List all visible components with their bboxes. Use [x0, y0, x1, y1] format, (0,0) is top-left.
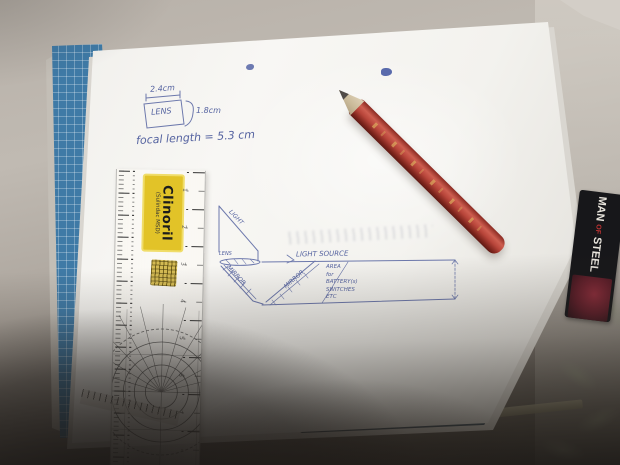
ruler-number: 4 [179, 299, 186, 303]
ruler-number: 6 [177, 373, 184, 377]
ruler-brand-text: Clinoril [160, 185, 174, 241]
battery-area-line: BATTERY(s) [326, 279, 372, 286]
card-photo [567, 275, 612, 322]
ruler-number: 1 [181, 188, 188, 192]
photo-scene: 2.4cm LENS 1.8cm focal length = 5.3 cm L… [0, 0, 620, 465]
ruler-number: 5 [178, 336, 185, 340]
ruler-number: 2 [180, 225, 187, 229]
card-text-of: OF [594, 224, 602, 235]
battery-area-line: ETC [326, 294, 372, 301]
width-dimension-label: 2.4cm [150, 83, 175, 94]
height-dimension-label: 1.8cm [196, 106, 221, 115]
lens-box-label: LENS [151, 106, 172, 116]
clinoril-label: Clinoril (Sulindac MSD) [141, 174, 185, 253]
battery-area-note: AREA for BATTERY(s) SWITCHES ETC [326, 264, 372, 302]
gold-hologram-sticker [150, 259, 177, 286]
diagram-lens-label: LENS [219, 251, 232, 257]
card-text-steel: STEEL [587, 236, 603, 273]
battery-area-line: for [326, 272, 372, 279]
battery-area-line: SWITCHES [326, 287, 372, 294]
ruler-number: 3 [179, 262, 186, 266]
ruler-brand-subtext: (Sulindac MSD) [153, 192, 161, 234]
battery-area-line: AREA [326, 264, 372, 271]
light-source-label: LIGHT SOURCE [296, 250, 349, 259]
card-text-man: MAN [593, 196, 608, 222]
